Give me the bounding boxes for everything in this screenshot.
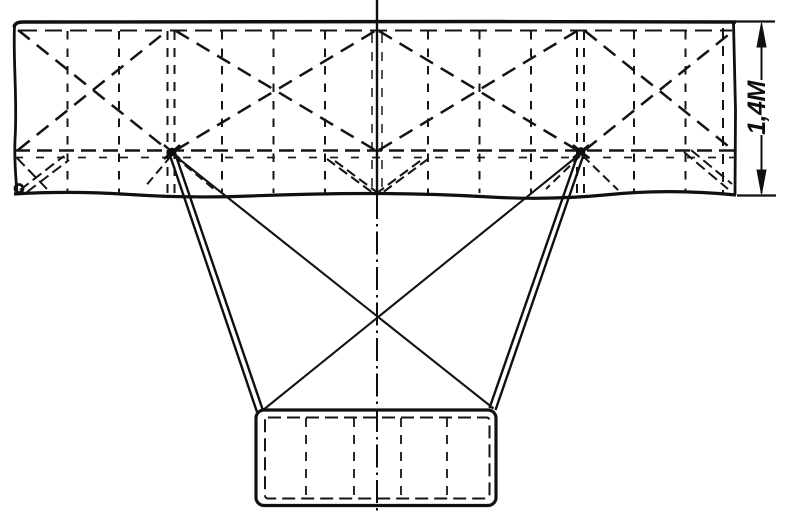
svg-text:1,4M: 1,4M bbox=[743, 80, 771, 135]
